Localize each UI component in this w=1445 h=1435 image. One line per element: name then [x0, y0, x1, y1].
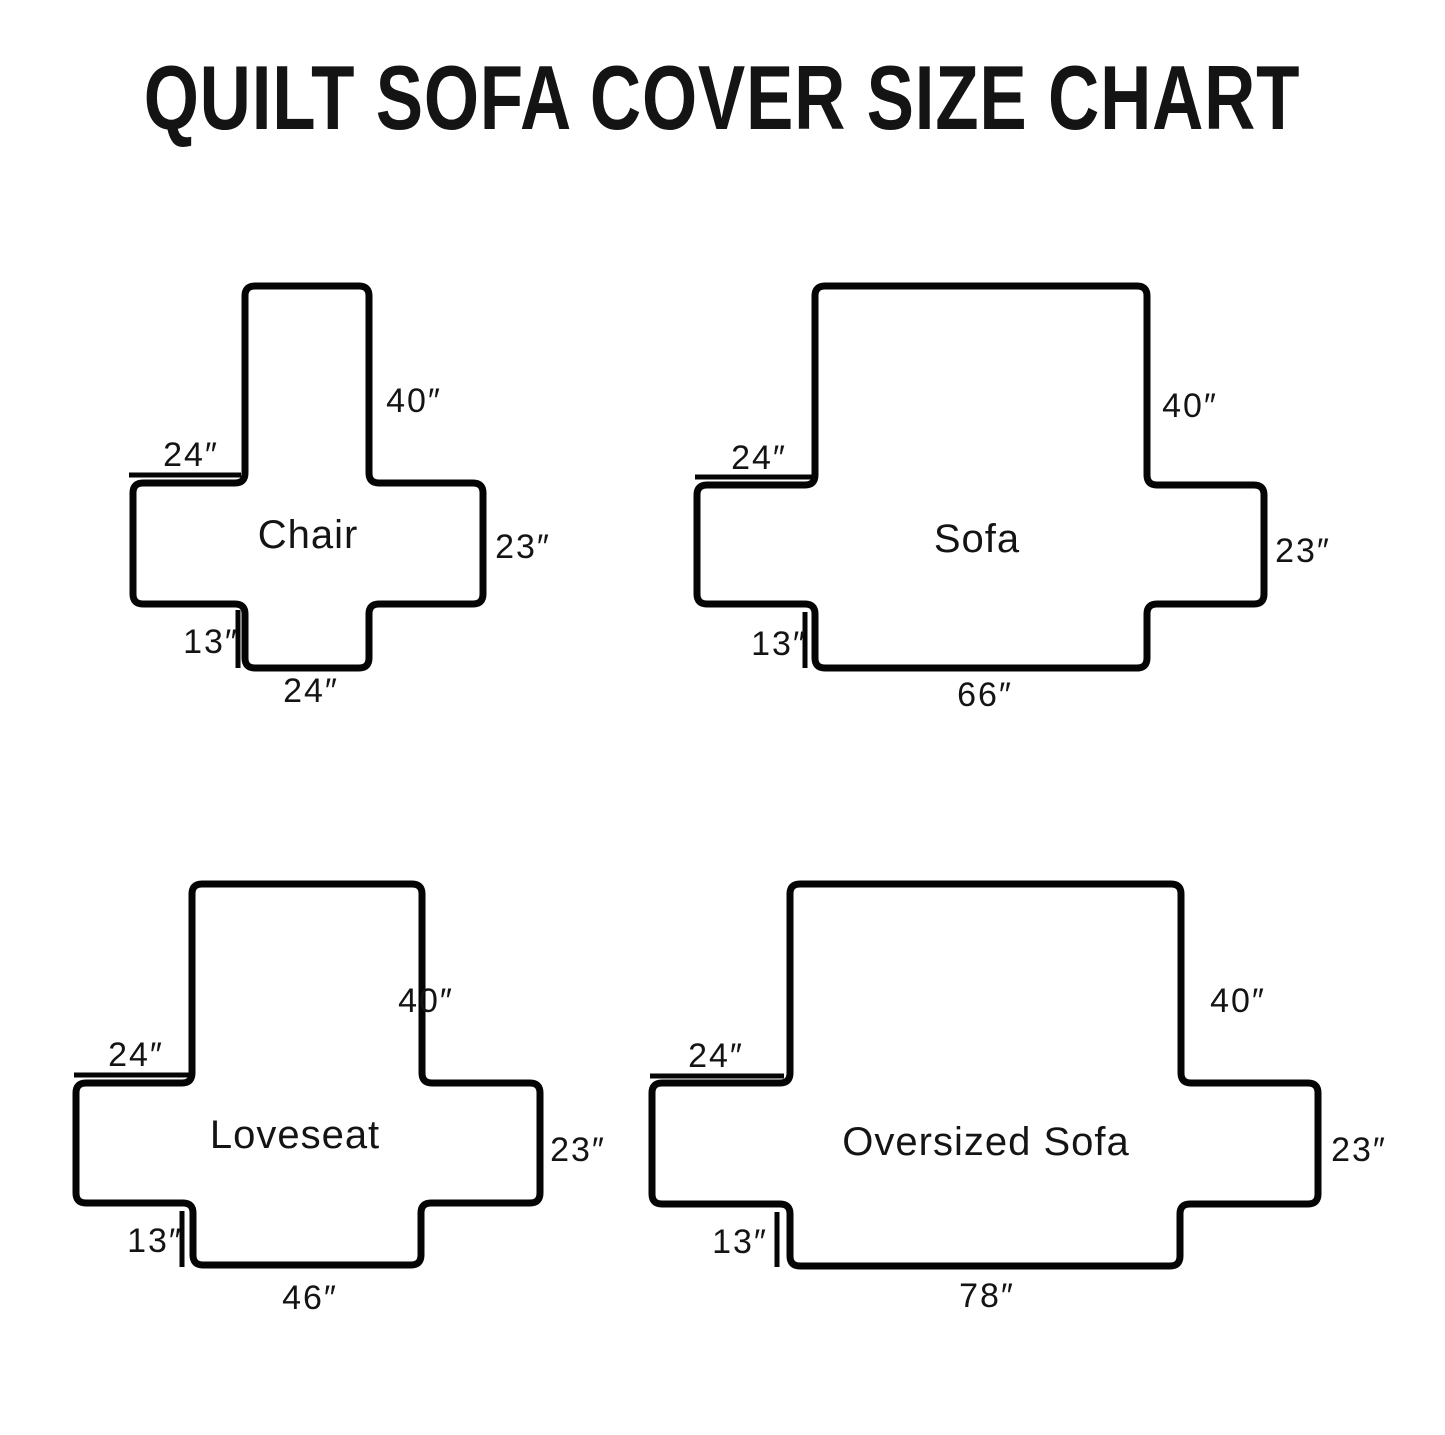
loveseat-side-depth-label: 23″	[550, 1131, 606, 1169]
size-chart-page: QUILT SOFA COVER SIZE CHART Chair 40″ 24…	[0, 0, 1445, 1435]
oversized-sofa-seat-width-label: 78″	[959, 1277, 1015, 1315]
oversized-sofa-side-depth-label: 23″	[1331, 1131, 1387, 1169]
chair-side-depth-label: 23″	[495, 528, 551, 566]
loveseat-back-length-label: 40″	[398, 982, 454, 1020]
sofa-label: Sofa	[934, 517, 1020, 561]
chair-diagram: Chair 40″ 24″ 23″ 13″ 24″	[129, 286, 551, 710]
loveseat-diagram: Loveseat 40″ 24″ 23″ 13″ 46″	[74, 884, 606, 1317]
chair-arm-width-label: 24″	[163, 436, 219, 474]
chair-skirt-drop-label: 13″	[183, 623, 239, 661]
sofa-seat-width-label: 66″	[957, 676, 1013, 714]
size-chart-canvas: QUILT SOFA COVER SIZE CHART Chair 40″ 24…	[0, 0, 1445, 1435]
chair-seat-width-label: 24″	[283, 672, 339, 710]
loveseat-skirt-drop-label: 13″	[127, 1222, 183, 1260]
sofa-back-length-label: 40″	[1162, 387, 1218, 425]
oversized-sofa-skirt-drop-label: 13″	[712, 1223, 768, 1261]
sofa-diagram: Sofa 40″ 24″ 23″ 13″ 66″	[695, 286, 1331, 714]
oversized-sofa-label: Oversized Sofa	[842, 1120, 1129, 1164]
page-title: QUILT SOFA COVER SIZE CHART	[144, 48, 1301, 149]
loveseat-label: Loveseat	[210, 1113, 380, 1157]
sofa-side-depth-label: 23″	[1275, 532, 1331, 570]
chair-back-length-label: 40″	[386, 382, 442, 420]
loveseat-seat-width-label: 46″	[282, 1279, 338, 1317]
loveseat-arm-width-label: 24″	[108, 1036, 164, 1074]
sofa-skirt-drop-label: 13″	[751, 625, 807, 663]
oversized-sofa-arm-width-label: 24″	[688, 1037, 744, 1075]
oversized-sofa-diagram: Oversized Sofa 40″ 24″ 23″ 13″ 78″	[650, 884, 1387, 1315]
oversized-sofa-back-length-label: 40″	[1210, 982, 1266, 1020]
chair-label: Chair	[258, 513, 359, 557]
sofa-arm-width-label: 24″	[731, 439, 787, 477]
